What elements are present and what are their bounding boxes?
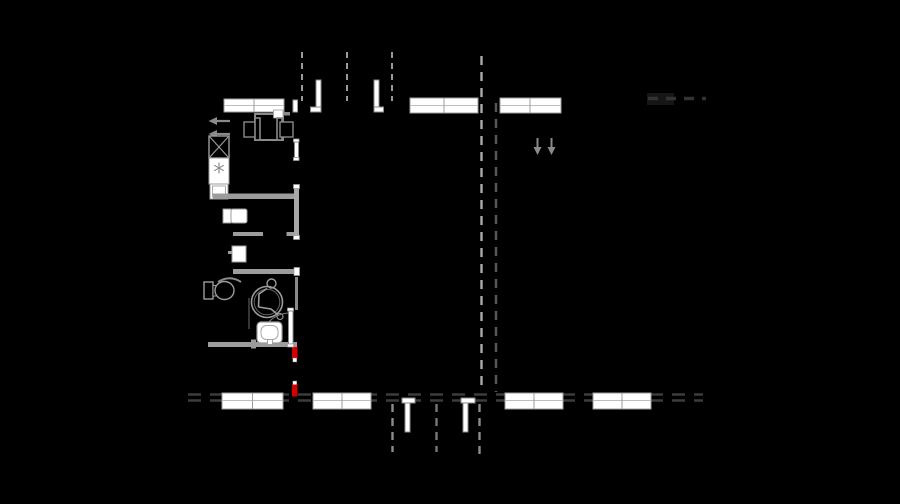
- exit-door-leaf-1-cap: [402, 398, 415, 403]
- toilet-tank: [204, 282, 213, 299]
- exit-door-leaf-1-bar: [405, 403, 410, 432]
- top-wall-end-cap: [293, 100, 298, 112]
- bathroom-door-leaf-bar: [289, 311, 294, 344]
- hall-door-bar: [233, 232, 263, 236]
- red-wall-marker-1: [292, 347, 298, 359]
- arrow-down-2-head: [548, 147, 556, 155]
- table-small-white-box: [274, 110, 284, 118]
- red-wall-marker-2-cap: [293, 381, 297, 385]
- bathroom-wall-bottom-tick: [251, 340, 256, 349]
- interior-wall-v1-cap-bottom: [294, 236, 300, 240]
- door-leaf-top-2-bar: [374, 80, 379, 108]
- floor-plan-canvas: [0, 0, 900, 504]
- door-leaf-top-2-foot: [374, 107, 384, 112]
- bathroom-door-leaf-cap-bottom: [288, 344, 294, 347]
- red-wall-marker-2: [292, 385, 298, 397]
- arrow-down-1-head: [534, 147, 542, 155]
- boiler-unit: [232, 246, 246, 262]
- exit-door-leaf-2-bar: [463, 403, 468, 432]
- interior-wall-v1: [294, 188, 299, 236]
- bathroom-wall-right: [295, 277, 298, 310]
- kitchen-door-leaf-cap-bottom: [294, 158, 300, 161]
- exit-door-leaf-2-cap: [461, 398, 475, 403]
- kitchen-door-leaf-bar: [295, 142, 299, 158]
- toilet-bowl: [215, 282, 234, 300]
- arrow-left-1-head: [209, 117, 218, 125]
- bathroom-wall-top: [233, 269, 297, 274]
- floor-plan: [0, 0, 900, 504]
- door-leaf-top-1-bar: [316, 80, 321, 108]
- washer-left-section: [223, 209, 231, 223]
- interior-wall-h1: [213, 194, 298, 200]
- door-leaf-top-1-foot: [311, 107, 322, 112]
- washer-right-section: [231, 209, 247, 223]
- chair-left-back: [255, 118, 260, 140]
- chair-right-seat: [280, 122, 293, 137]
- interior-wall-v1-cap-top: [294, 185, 300, 189]
- washbasin-tap: [268, 340, 273, 345]
- interior-wall-v1-tick: [287, 232, 295, 236]
- boiler-unit-tick: [228, 251, 233, 254]
- bathroom-wall-top-cap: [294, 268, 300, 276]
- wheelchair-wheel-outer: [252, 287, 283, 318]
- red-wall-marker-1-cap: [293, 358, 297, 362]
